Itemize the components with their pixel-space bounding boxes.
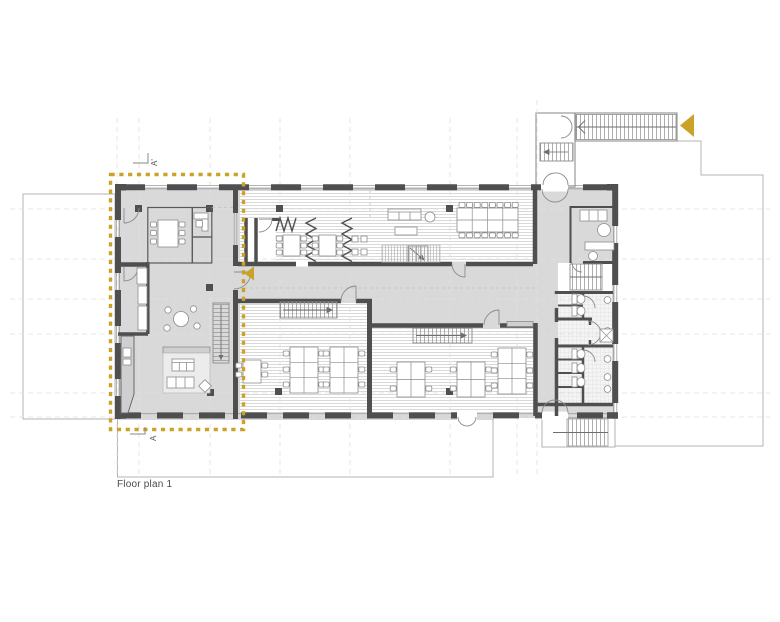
desk-cluster — [323, 347, 365, 393]
desk-cluster — [491, 348, 533, 394]
workshop-table — [312, 235, 343, 256]
stool — [361, 249, 367, 255]
context-bottom-outline — [118, 419, 494, 477]
stool — [361, 236, 367, 242]
toilet — [572, 377, 585, 387]
toilet — [572, 306, 585, 316]
sink — [604, 356, 611, 363]
sink — [604, 386, 611, 393]
toilet — [572, 363, 585, 373]
sofa — [172, 359, 194, 371]
wardrobe — [138, 286, 147, 304]
sideboard — [507, 322, 533, 327]
context-right-outline — [615, 141, 763, 446]
sink — [604, 297, 611, 304]
sofa — [167, 377, 194, 388]
meeting-table — [151, 220, 186, 247]
booth-rooms-floor — [248, 218, 276, 262]
desk-cluster — [283, 347, 325, 393]
sideboard — [163, 347, 210, 353]
stool — [352, 236, 358, 242]
shower — [600, 329, 613, 342]
plan-caption: Floor plan 1 — [117, 479, 172, 490]
wardrobe — [138, 306, 147, 330]
workshop-table — [276, 235, 307, 256]
section-marker-bottom-label: A — [149, 435, 158, 441]
floor-plan-drawing: A' A — [0, 0, 780, 622]
exterior-stair-arrow-icon[interactable] — [680, 114, 694, 137]
kitchen-counter — [121, 336, 134, 413]
wardrobe — [137, 268, 147, 284]
main-entrance-opening — [541, 183, 568, 192]
context-left-outline — [23, 194, 115, 419]
floor-plan-canvas: A' A Floor plan 1 — [0, 0, 780, 622]
round-table — [174, 312, 189, 327]
stool — [352, 249, 358, 255]
south-door-opening — [457, 412, 477, 421]
toilet — [572, 349, 585, 359]
toilet — [572, 294, 585, 304]
sink — [604, 374, 611, 381]
section-marker-top-label: A' — [150, 159, 159, 166]
